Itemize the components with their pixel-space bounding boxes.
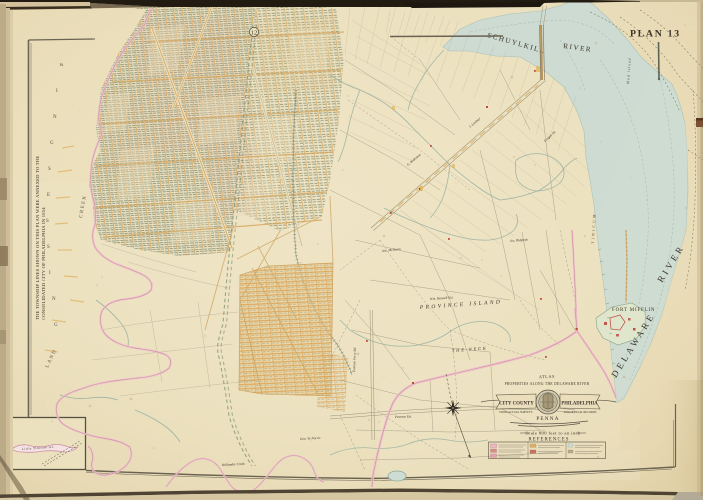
svg-text:12: 12 [251,30,258,37]
svg-text:E: E [47,193,50,198]
svg-text:PROPERTIES ALONG THE DELAWARE: PROPERTIES ALONG THE DELAWARE RIVER [505,382,590,386]
svg-text:G: G [54,323,58,328]
svg-text:PHILADELPHIA: PHILADELPHIA [561,401,598,406]
svg-text:S: S [48,167,51,172]
svg-text:PLAN 13: PLAN 13 [630,29,681,40]
svg-text:Scale 800 feet to an inch: Scale 800 feet to an inch [525,431,581,436]
svg-text:AND OFFICIAL RECORDS: AND OFFICIAL RECORDS [564,411,597,414]
svg-text:ATLAS: ATLAS [539,374,555,380]
svg-text:S: S [47,245,50,250]
svg-text:N: N [52,297,56,302]
svg-text:K: K [60,63,64,68]
svg-text:FROM ACTUAL SURVEYS: FROM ACTUAL SURVEYS [500,411,533,414]
svg-text:CITY COUNTY: CITY COUNTY [499,401,534,406]
svg-text:S: S [46,219,49,224]
svg-text:N: N [53,115,57,120]
svg-text:Penrose Est.: Penrose Est. [394,414,412,419]
svg-text:PENNA: PENNA [536,416,559,422]
svg-text:G: G [50,141,54,146]
svg-text:THE TOWNSHIP LINES SHOWN ON TH: THE TOWNSHIP LINES SHOWN ON THIS PLAN WE… [35,156,40,320]
